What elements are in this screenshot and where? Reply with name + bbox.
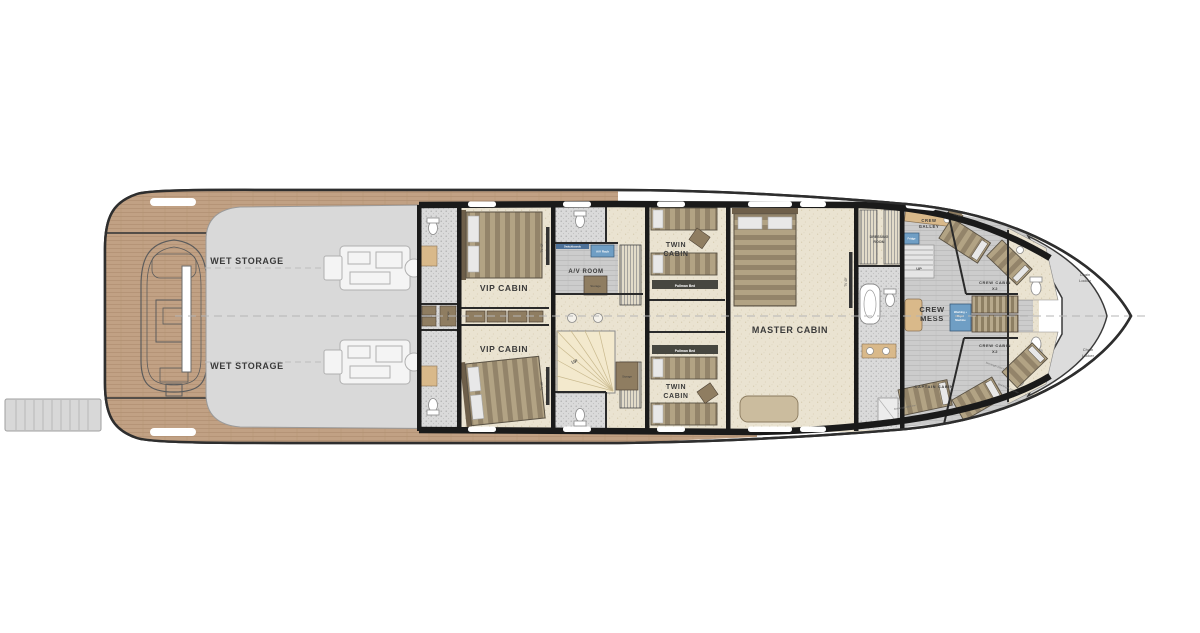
tv43-bottom-label: TV 43" (540, 381, 544, 391)
transom-door (182, 266, 191, 372)
chain-locker-top-label-1: Chain (1080, 272, 1090, 277)
twin-top-label-2: CABIN (663, 251, 688, 258)
storage-cabinet (620, 245, 641, 305)
wet-storage-top-label: WET STORAGE (210, 256, 283, 266)
captain-cabin-label: CAPTAIN CABIN (914, 384, 953, 389)
guest-staircase (557, 331, 615, 393)
sink-icon (883, 348, 890, 355)
av-room-label: A/V ROOM (568, 269, 603, 275)
stern-deck-slot-bottom (150, 428, 196, 436)
bow-storage-box (1033, 216, 1051, 231)
washer-label-3: Machine (955, 318, 966, 322)
up-crew-label: UP (916, 266, 922, 271)
av-rack-label: A/V Rack (596, 250, 609, 254)
crew-staircase (903, 245, 934, 278)
twin-top-label-1: TWIN (666, 242, 686, 249)
tv-unit (546, 227, 550, 265)
toilet-icon (886, 294, 895, 307)
twin-bottom-label-1: TWIN (666, 384, 686, 391)
crew-galley-label-2: GALLEY (919, 224, 940, 229)
crew-cabin-bottom-label-1: CREW CABIN (979, 343, 1011, 348)
tv43-top-label: TV 43" (540, 243, 544, 253)
av-storage-label: Storage (590, 284, 601, 288)
chain-locker-bottom-label-2: Locker (1082, 353, 1095, 358)
wet-storage-bottom-label: WET STORAGE (210, 361, 283, 371)
crew-galley-label-1: CREW (921, 218, 936, 223)
crew-cabin-top-label-2: X2 (992, 286, 998, 291)
chain-locker-bottom-label-1: Chain (1083, 347, 1093, 352)
chain-locker-top-label-2: Locker (1079, 278, 1092, 283)
master-cabin-label: MASTER CABIN (752, 325, 828, 335)
tv49-label: TV 49" (844, 277, 848, 287)
dressing-label-2: ROOM (873, 240, 884, 244)
vip-cabin-top (461, 210, 542, 280)
tv-unit (546, 367, 550, 405)
crew-mess-label-1: CREW (919, 305, 945, 314)
toilet-icon (429, 222, 438, 235)
crew-mess-label-2: MESS (920, 314, 944, 323)
crew-cabin-top-label-1: CREW CABIN (979, 280, 1011, 285)
toilet-icon (576, 409, 585, 422)
toilet-icon (429, 399, 438, 412)
vip-cabin-bottom-label: VIP CABIN (480, 344, 528, 354)
toilet-icon (576, 215, 585, 228)
yacht-lower-deck-plan: WET STORAGE WET STORAGE VIP CABIN VIP CA… (0, 0, 1200, 633)
fridge-label: Fridge (908, 237, 916, 241)
master-chaise (740, 396, 798, 422)
dressing-label-1: DRESSING (870, 235, 889, 239)
washer-label-1: Washing + (954, 310, 967, 314)
vip-cabin-top-label: VIP CABIN (480, 283, 528, 293)
stern-deck-slot-top (150, 198, 196, 206)
deck-plan-canvas: WET STORAGE WET STORAGE VIP CABIN VIP CA… (0, 0, 1200, 633)
tv-unit (849, 252, 853, 308)
sink-icon (867, 348, 874, 355)
stair-storage-label: Storage (622, 375, 632, 379)
pullman-top-label: Pullman Bed (675, 284, 696, 288)
switchboards-label: Switchboards (564, 244, 582, 248)
crew-cabin-bottom-label-2: X2 (992, 349, 998, 354)
passerelle-gangway (5, 399, 101, 431)
pullman-bottom-label: Pullman Bed (675, 349, 696, 353)
vip-cabin-bottom (460, 354, 545, 428)
twin-bottom-label-2: CABIN (663, 393, 688, 400)
